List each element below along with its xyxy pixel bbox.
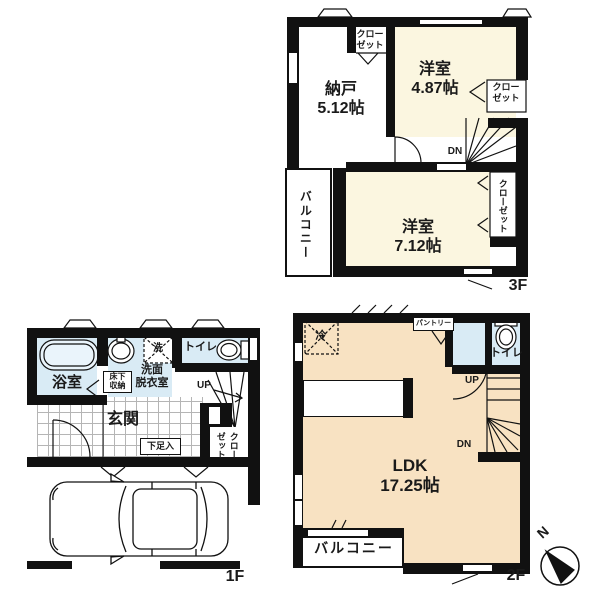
stairs-dn-label-2f: DN — [453, 439, 475, 451]
wall-segment — [287, 17, 299, 170]
nando-name: 納戸 — [325, 81, 357, 98]
washbasin-icon — [108, 337, 134, 363]
wall-segment — [97, 328, 108, 366]
vent-trapezoids-1f — [64, 320, 224, 328]
closet-label-3f-vertical: クローゼット — [497, 176, 508, 236]
parking-boundary — [27, 561, 72, 569]
stairs-up-label-1f: UP — [194, 380, 214, 392]
closet-label-1f-col-right: クロー — [228, 429, 239, 461]
washroom-l2: 脱衣室 — [136, 377, 169, 389]
kitchen-counter — [303, 380, 404, 417]
stair-closet-slot — [209, 407, 220, 424]
balcony-label-3f: バルコニー — [298, 180, 312, 270]
washroom-l1: 洗面 — [141, 364, 163, 376]
toilet-2f-icon — [495, 319, 517, 349]
car-icon — [50, 474, 228, 564]
toilet-1f-icon — [217, 340, 250, 360]
wall-segment — [452, 365, 530, 374]
laundry-label: 洗 — [150, 343, 166, 355]
shoe-cabinet-box: 下足入 — [140, 438, 181, 455]
closet-label-3f-right: クロー ゼット — [488, 82, 524, 104]
entrance-door-arc — [53, 397, 103, 457]
bedroom2-size: 7.12帖 — [394, 238, 441, 255]
stairs-up-label-2f: UP — [462, 375, 482, 387]
compass-icon — [541, 547, 579, 585]
room-label-3f-bedroom1: 洋室 4.87帖 — [405, 60, 465, 98]
wall-segment — [27, 328, 260, 338]
floor-plan-canvas: 床下 収納 下足入 パントリー 納戸 5.12帖 洋室 4.87帖 洋室 7.1… — [0, 0, 600, 600]
wall-segment — [490, 237, 516, 247]
room-label-washroom: 洗面 脱衣室 — [128, 364, 176, 390]
window-symbol — [249, 338, 258, 360]
wall-segment — [403, 378, 413, 418]
closet-right-l2: ゼット — [492, 93, 519, 103]
room-label-toilet-1f: トイレ — [184, 341, 216, 354]
wall-segment — [287, 17, 528, 27]
ldk-name: LDK — [393, 456, 428, 475]
wall-segment — [27, 395, 107, 405]
bedroom2-name: 洋室 — [402, 219, 434, 236]
wall-segment — [516, 118, 528, 277]
closet-label-1f-col-left: ゼット — [215, 429, 226, 461]
shoe-cabinet-label: 下足入 — [147, 442, 174, 452]
bedroom1-name: 洋室 — [419, 61, 451, 78]
window-symbol — [308, 529, 368, 537]
wall-segment — [478, 452, 530, 462]
closet-top-l1: クロー — [356, 29, 383, 39]
bathtub-icon — [40, 340, 98, 370]
ldk-size: 17.25帖 — [380, 476, 440, 495]
wall-segment — [488, 118, 516, 128]
floor-label-1f: 1F — [218, 567, 252, 586]
underfloor-label-1: 床下 — [110, 372, 126, 381]
closet-label-3f-top: クロー ゼット — [352, 29, 388, 51]
door-arc-3f-hall — [395, 137, 421, 163]
closet-top-l2: ゼット — [356, 40, 383, 50]
window-symbol — [294, 475, 303, 499]
window-symbol — [463, 564, 492, 572]
window-symbol — [464, 268, 492, 275]
nando-size: 5.12帖 — [317, 100, 364, 117]
room-label-entrance: 玄関 — [101, 410, 145, 429]
pantry-label: パントリー — [416, 320, 451, 328]
wall-segment — [200, 427, 210, 460]
vent-trapezoid-3f — [318, 9, 531, 17]
floor-label-2f: 2F — [499, 566, 533, 585]
underfloor-label-2: 収納 — [110, 381, 126, 390]
floor-label-3f: 3F — [502, 276, 534, 295]
wall-segment — [293, 313, 530, 323]
room-label-bath: 浴室 — [47, 374, 87, 392]
fridge-label: 冷 — [313, 330, 329, 343]
pantry-box: パントリー — [413, 317, 454, 331]
wall-segment — [333, 168, 346, 277]
wall-segment — [516, 17, 528, 80]
window-symbol — [437, 163, 466, 171]
stairs-2f — [487, 367, 520, 452]
window-symbol — [294, 343, 303, 361]
room-label-ldk: LDK 17.25帖 — [368, 456, 452, 497]
louver-marks-2f — [352, 305, 408, 313]
bedroom1-size: 4.87帖 — [411, 80, 458, 97]
window-symbol — [294, 501, 303, 525]
balcony-label-2f: バルコニー — [314, 540, 394, 557]
room-label-3f-bedroom2: 洋室 7.12帖 — [388, 218, 448, 256]
closet-right-l1: クロー — [492, 82, 519, 92]
window-symbol — [288, 53, 298, 83]
wall-segment — [172, 328, 182, 368]
room-label-3f-nando: 納戸 5.12帖 — [311, 80, 371, 118]
window-symbol — [420, 19, 482, 25]
wall-segment — [346, 162, 516, 172]
stairs-dn-label-3f: DN — [444, 146, 466, 158]
closet-3f-top — [356, 53, 390, 64]
wall-segment — [346, 266, 528, 277]
entry-door-marks — [101, 467, 208, 477]
room-label-toilet-2f: トイレ — [490, 347, 522, 360]
